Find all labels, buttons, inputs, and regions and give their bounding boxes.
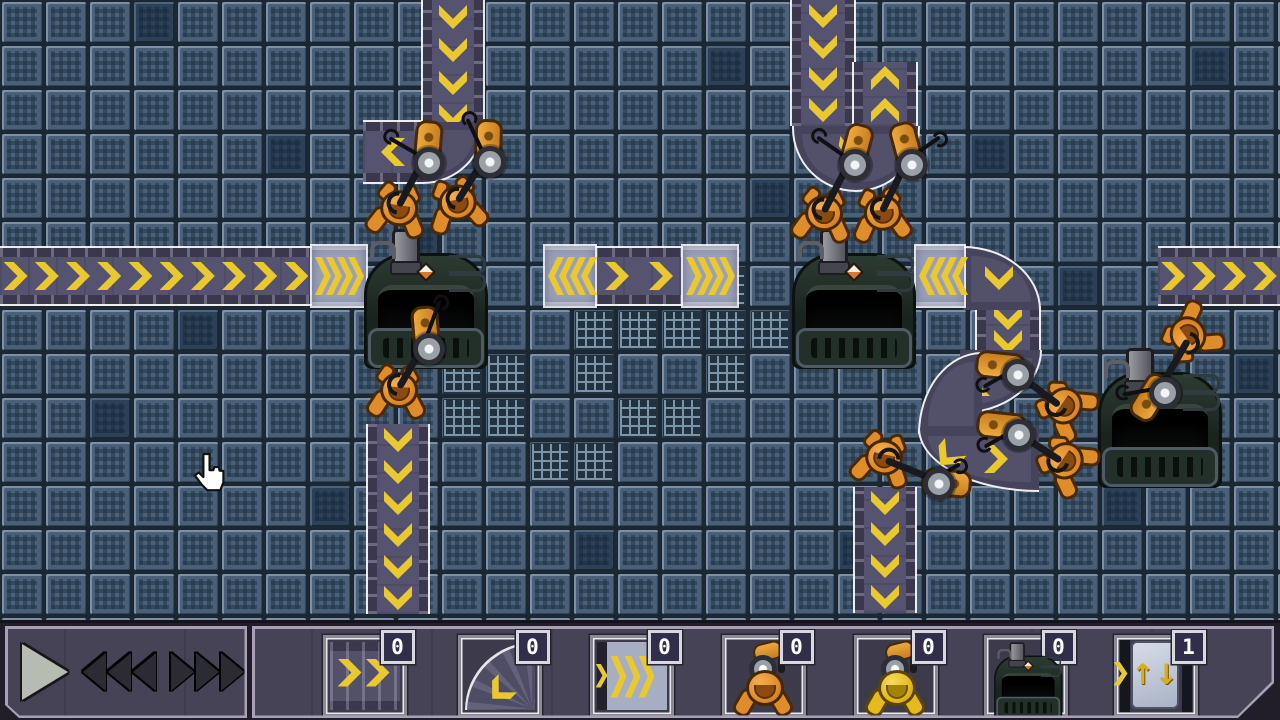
chevron-icon <box>809 35 837 59</box>
floor-tile <box>794 486 834 526</box>
floor-tile <box>222 442 262 482</box>
floor-tile <box>970 178 1010 218</box>
chevron-icon <box>985 266 1013 290</box>
floor-tile <box>266 2 306 42</box>
chevron-icon <box>871 491 899 515</box>
rewind-triangle-icon <box>108 653 131 691</box>
floor-tile <box>266 90 306 130</box>
floor-tile <box>530 178 570 218</box>
fast-conveyor[interactable] <box>312 246 366 306</box>
forward-triangle-icon <box>171 653 194 691</box>
slot-curved-conveyor[interactable]: 0 <box>458 635 542 716</box>
floor-tile <box>1058 266 1098 306</box>
floor-tile <box>926 2 966 42</box>
floor-tile <box>662 574 702 614</box>
chevron-icon <box>1253 262 1277 290</box>
floor-tile <box>46 574 86 614</box>
machine-handle-part <box>877 255 914 274</box>
floor-tile <box>706 442 746 482</box>
floor-tile <box>1234 354 1274 394</box>
count-badge: 0 <box>381 630 415 664</box>
floor-tile <box>178 90 218 130</box>
machine-hoop-part <box>798 241 824 259</box>
floor-tile <box>310 310 350 350</box>
floor-tile <box>222 2 262 42</box>
floor-tile <box>486 222 526 262</box>
machine-handle-part <box>1183 392 1220 411</box>
arm-pivot <box>1149 377 1181 409</box>
floor-tile <box>266 354 306 394</box>
grate-tile <box>750 310 790 350</box>
floor-tile <box>354 2 394 42</box>
grate-tile <box>706 310 746 350</box>
chevron-icon <box>1192 262 1216 290</box>
floor-tile <box>222 178 262 218</box>
floor-tile <box>618 530 658 570</box>
arm-pivot <box>1003 419 1035 451</box>
playback-controls <box>8 629 245 716</box>
floor-tile <box>750 574 790 614</box>
slot-fast-conveyor[interactable]: 0 <box>590 635 674 716</box>
floor-tile <box>310 530 350 570</box>
floor-tile <box>90 310 130 350</box>
grate-tile <box>574 310 614 350</box>
floor-tile <box>574 134 614 174</box>
floor-tile <box>266 310 306 350</box>
count-badge: 0 <box>516 630 550 664</box>
floor-tile <box>1058 310 1098 350</box>
play-button[interactable] <box>22 644 68 700</box>
floor-tile <box>442 486 482 526</box>
floor-tile <box>1146 46 1186 86</box>
floor-tile <box>1058 530 1098 570</box>
robot-grabber-icon <box>869 664 921 714</box>
floor-tile <box>574 2 614 42</box>
floor-tile <box>178 2 218 42</box>
chevron-icon <box>191 262 215 290</box>
floor-tile <box>706 486 746 526</box>
machine-handle-part <box>1183 374 1220 393</box>
floor-tile <box>486 2 526 42</box>
floor-tile <box>750 2 790 42</box>
floor-tile <box>1102 2 1142 42</box>
floor-tile <box>618 486 658 526</box>
slot-grabber-arm-yellow[interactable]: 0 <box>854 635 938 716</box>
floor-tile <box>706 574 746 614</box>
floor-tile <box>266 398 306 438</box>
floor-tile <box>1058 574 1098 614</box>
floor-tile <box>2 134 42 174</box>
floor-tile <box>882 2 922 42</box>
floor-tile <box>750 178 790 218</box>
floor-tile <box>530 2 570 42</box>
floor-tile <box>134 310 174 350</box>
chevron-icon <box>686 257 702 295</box>
floor-tile <box>2 398 42 438</box>
mouse-cursor <box>188 452 228 496</box>
floor-tile <box>222 46 262 86</box>
machine-handle-part <box>1040 666 1060 676</box>
floor-tile <box>486 442 526 482</box>
floor-tile <box>618 178 658 218</box>
floor-tile <box>1102 574 1142 614</box>
floor-tile <box>794 574 834 614</box>
floor-tile <box>970 486 1010 526</box>
floor-tile <box>970 90 1010 130</box>
furnace-machine[interactable] <box>790 243 918 369</box>
floor-tile <box>310 574 350 614</box>
arm-pivot <box>413 147 445 179</box>
floor-tile <box>706 530 746 570</box>
arm-pivot <box>1002 359 1034 391</box>
floor-tile <box>1014 486 1054 526</box>
floor-tile <box>222 134 262 174</box>
chevron-icon <box>315 257 331 295</box>
floor-tile <box>310 178 350 218</box>
floor-tile <box>1146 574 1186 614</box>
arm-pivot <box>413 333 445 365</box>
floor-tile <box>90 574 130 614</box>
floor-tile <box>618 442 658 482</box>
chevron-icon <box>439 71 467 95</box>
floor-tile <box>46 2 86 42</box>
floor-tile <box>794 398 834 438</box>
chevron-icon <box>35 262 59 290</box>
floor-tile <box>266 530 306 570</box>
count-badge: 0 <box>912 630 946 664</box>
floor-tile <box>1234 486 1274 526</box>
floor-tile <box>46 90 86 130</box>
grate-tile <box>618 310 658 350</box>
chevron-icon <box>384 555 412 579</box>
forward-triangle-icon <box>221 653 244 691</box>
floor-tile <box>46 178 86 218</box>
floor-tile <box>222 90 262 130</box>
floor-tile <box>618 354 658 394</box>
factory-floor <box>0 0 1280 620</box>
chevron-icon <box>439 38 467 62</box>
floor-tile <box>882 398 922 438</box>
floor-tile <box>1146 90 1186 130</box>
floor-tile <box>46 310 86 350</box>
machine-vent-part <box>996 696 1060 715</box>
speed-up-button[interactable] <box>171 653 244 691</box>
floor-tile <box>266 134 306 174</box>
floor-tile <box>926 574 966 614</box>
floor-tile <box>2 178 42 218</box>
conveyor-belt[interactable] <box>0 248 312 304</box>
slot-furnace-machine[interactable]: 0 <box>984 635 1068 716</box>
chevron-icon <box>596 664 608 688</box>
rewind-triangle-icon <box>133 653 156 691</box>
floor-tile <box>2 354 42 394</box>
floor-tile <box>530 134 570 174</box>
up-arrow-icon: ↑ <box>1131 661 1154 689</box>
arm-pivot <box>839 149 871 181</box>
floor-tile <box>222 530 262 570</box>
chevron-icon <box>253 262 277 290</box>
floor-tile <box>1058 90 1098 130</box>
floor-tile <box>134 2 174 42</box>
floor-tile <box>574 530 614 570</box>
floor-tile <box>222 354 262 394</box>
floor-tile <box>486 486 526 526</box>
floor-tile <box>662 2 702 42</box>
floor-tile <box>530 530 570 570</box>
floor-tile <box>1014 2 1054 42</box>
floor-tile <box>486 574 526 614</box>
floor-tile <box>90 178 130 218</box>
floor-tile <box>266 442 306 482</box>
floor-tile <box>354 46 394 86</box>
floor-tile <box>90 2 130 42</box>
floor-tile <box>926 90 966 130</box>
floor-tile <box>1014 46 1054 86</box>
floor-tile <box>46 530 86 570</box>
floor-tile <box>2 530 42 570</box>
floor-tile <box>1102 222 1142 262</box>
machine-hoop-part <box>370 241 396 259</box>
floor-tile <box>134 574 174 614</box>
floor-tile <box>310 90 350 130</box>
chevron-icon <box>871 66 899 90</box>
floor-tile <box>134 134 174 174</box>
floor-tile <box>178 574 218 614</box>
arm-pivot <box>474 146 506 178</box>
floor-tile <box>46 398 86 438</box>
fast-conveyor[interactable] <box>683 246 737 306</box>
floor-tile <box>1190 486 1230 526</box>
machine-handle-part <box>449 255 486 274</box>
grate-tile <box>618 398 658 438</box>
floor-tile <box>1234 442 1274 482</box>
conveyor-belt[interactable] <box>855 487 915 613</box>
chevron-icon <box>871 522 899 546</box>
game-screen: 0 0 0 <box>0 0 1280 720</box>
floor-tile <box>486 310 526 350</box>
grate-tile <box>530 442 570 482</box>
floor-tile <box>706 90 746 130</box>
floor-tile <box>442 442 482 482</box>
floor-tile <box>2 2 42 42</box>
chevron-icon <box>809 67 837 91</box>
floor-tile <box>1190 574 1230 614</box>
chevron-icon <box>581 257 597 295</box>
floor-tile <box>970 2 1010 42</box>
floor-tile <box>134 530 174 570</box>
down-arrow-icon: ↓ <box>1155 661 1178 689</box>
chevron-icon <box>1161 262 1185 290</box>
floor-tile <box>90 486 130 526</box>
floor-tile <box>1190 178 1230 218</box>
floor-tile <box>1190 2 1230 42</box>
floor-tile <box>618 2 658 42</box>
floor-tile <box>662 90 702 130</box>
floor-tile <box>1058 2 1098 42</box>
chevron-icon <box>222 262 246 290</box>
playback-panel-inner <box>8 629 245 716</box>
floor-tile <box>574 46 614 86</box>
floor-tile <box>574 398 614 438</box>
floor-tile <box>310 486 350 526</box>
chevron-icon <box>649 262 673 290</box>
floor-tile <box>750 46 790 86</box>
floor-tile <box>46 486 86 526</box>
floor-tile <box>1102 310 1142 350</box>
floor-tile <box>926 46 966 86</box>
grate-tile <box>706 354 746 394</box>
floor-tile <box>750 354 790 394</box>
conveyor-belt[interactable] <box>595 248 683 304</box>
floor-tile <box>486 46 526 86</box>
floor-tile <box>1234 310 1274 350</box>
slot-straight-conveyor[interactable]: 0 <box>323 635 407 716</box>
conveyor-belt[interactable] <box>854 62 916 126</box>
floor-tile <box>970 530 1010 570</box>
floor-tile <box>750 222 790 262</box>
floor-tile <box>794 530 834 570</box>
floor-tile <box>222 574 262 614</box>
floor-tile <box>618 574 658 614</box>
floor-tile <box>662 134 702 174</box>
machine-hoop-part <box>1104 360 1130 378</box>
floor-tile <box>1190 90 1230 130</box>
floor-tile <box>178 178 218 218</box>
grate-tile <box>574 354 614 394</box>
floor-tile <box>530 310 570 350</box>
floor-tile <box>2 46 42 86</box>
chevron-icon <box>1222 262 1246 290</box>
machine-handle-part <box>449 273 486 292</box>
floor-tile <box>486 530 526 570</box>
floor-tile <box>1234 90 1274 130</box>
floor-tile <box>178 134 218 174</box>
machine-handle-part <box>1040 656 1060 666</box>
floor-tile <box>530 90 570 130</box>
fast-conveyor[interactable] <box>916 246 964 306</box>
floor-tile <box>1146 178 1186 218</box>
floor-tile <box>1234 574 1274 614</box>
machine-vent-part <box>1102 447 1218 487</box>
floor-tile <box>310 2 350 42</box>
floor-tile <box>2 310 42 350</box>
floor-tile <box>618 90 658 130</box>
conveyor-belt[interactable] <box>1158 248 1280 304</box>
floor-tile <box>1234 134 1274 174</box>
floor-tile <box>1234 530 1274 570</box>
items-panel-inner: 0 0 0 <box>255 629 1272 716</box>
floor-tile <box>574 574 614 614</box>
items-panel: 0 0 0 <box>252 626 1274 718</box>
floor-tile <box>1102 134 1142 174</box>
floor-tile <box>178 398 218 438</box>
conveyor-belt[interactable] <box>368 424 428 614</box>
floor-tile <box>750 134 790 174</box>
floor-tile <box>1146 486 1186 526</box>
chevron-icon <box>871 554 899 578</box>
floor-tile <box>970 574 1010 614</box>
floor-tile <box>1146 2 1186 42</box>
chevron-icon <box>338 659 362 687</box>
machine-vent-part <box>796 328 912 368</box>
chevron-icon <box>871 98 899 122</box>
chevron-icon <box>4 262 28 290</box>
floor-tile <box>618 134 658 174</box>
floor-tile <box>310 354 350 394</box>
chevron-icon <box>384 586 412 610</box>
floor-tile <box>134 354 174 394</box>
chevron-icon <box>483 674 517 708</box>
floor-tile <box>662 46 702 86</box>
floor-tile <box>90 442 130 482</box>
machine-hoop-part <box>997 648 1011 658</box>
floor-tile <box>266 178 306 218</box>
conveyor-belt[interactable] <box>792 0 854 126</box>
chevron-icon <box>605 262 629 290</box>
chevron-icon <box>384 491 412 515</box>
slow-down-button[interactable] <box>83 653 156 691</box>
floor-tile <box>662 530 702 570</box>
floor-tile <box>486 266 526 306</box>
floor-tile <box>46 354 86 394</box>
floor-tile <box>1014 574 1054 614</box>
floor-tile <box>2 90 42 130</box>
floor-tile <box>1058 222 1098 262</box>
forward-triangle-icon <box>196 653 219 691</box>
conveyor-belt[interactable] <box>977 306 1039 354</box>
slot-grabber-arm-orange[interactable]: 0 <box>722 635 806 716</box>
floor-tile <box>134 90 174 130</box>
floor-tile <box>1014 530 1054 570</box>
floor-tile <box>926 530 966 570</box>
grate-tile <box>662 398 702 438</box>
floor-tile <box>90 530 130 570</box>
floor-tile <box>1234 46 1274 86</box>
floor-tile <box>574 486 614 526</box>
floor-tile <box>750 530 790 570</box>
floor-tile <box>1146 530 1186 570</box>
count-badge: 1 <box>1172 630 1206 664</box>
floor-tile <box>1102 90 1142 130</box>
floor-tile <box>706 398 746 438</box>
floor-tile <box>706 2 746 42</box>
floor-tile <box>1234 178 1274 218</box>
floor-tile <box>310 46 350 86</box>
floor-tile <box>90 90 130 130</box>
floor-tile <box>178 530 218 570</box>
floor-tile <box>266 486 306 526</box>
floor-tile <box>1102 178 1142 218</box>
floor-tile <box>1014 90 1054 130</box>
chevron-icon <box>625 656 641 698</box>
floor-tile <box>574 90 614 130</box>
floor-tile <box>1190 46 1230 86</box>
floor-tile <box>1102 46 1142 86</box>
furnace-machine-mini <box>993 650 1063 716</box>
floor-tile <box>46 134 86 174</box>
grate-tile <box>486 354 526 394</box>
floor-tile <box>530 486 570 526</box>
fast-conveyor[interactable] <box>545 246 595 306</box>
floor-tile <box>1102 266 1142 306</box>
floor-tile <box>266 574 306 614</box>
floor-tile <box>442 530 482 570</box>
count-badge: 0 <box>648 630 682 664</box>
floor-tile <box>662 354 702 394</box>
slot-exit-hatch[interactable]: ↑↓ 1 <box>1114 635 1198 716</box>
floor-tile <box>2 574 42 614</box>
floor-tile <box>134 178 174 218</box>
